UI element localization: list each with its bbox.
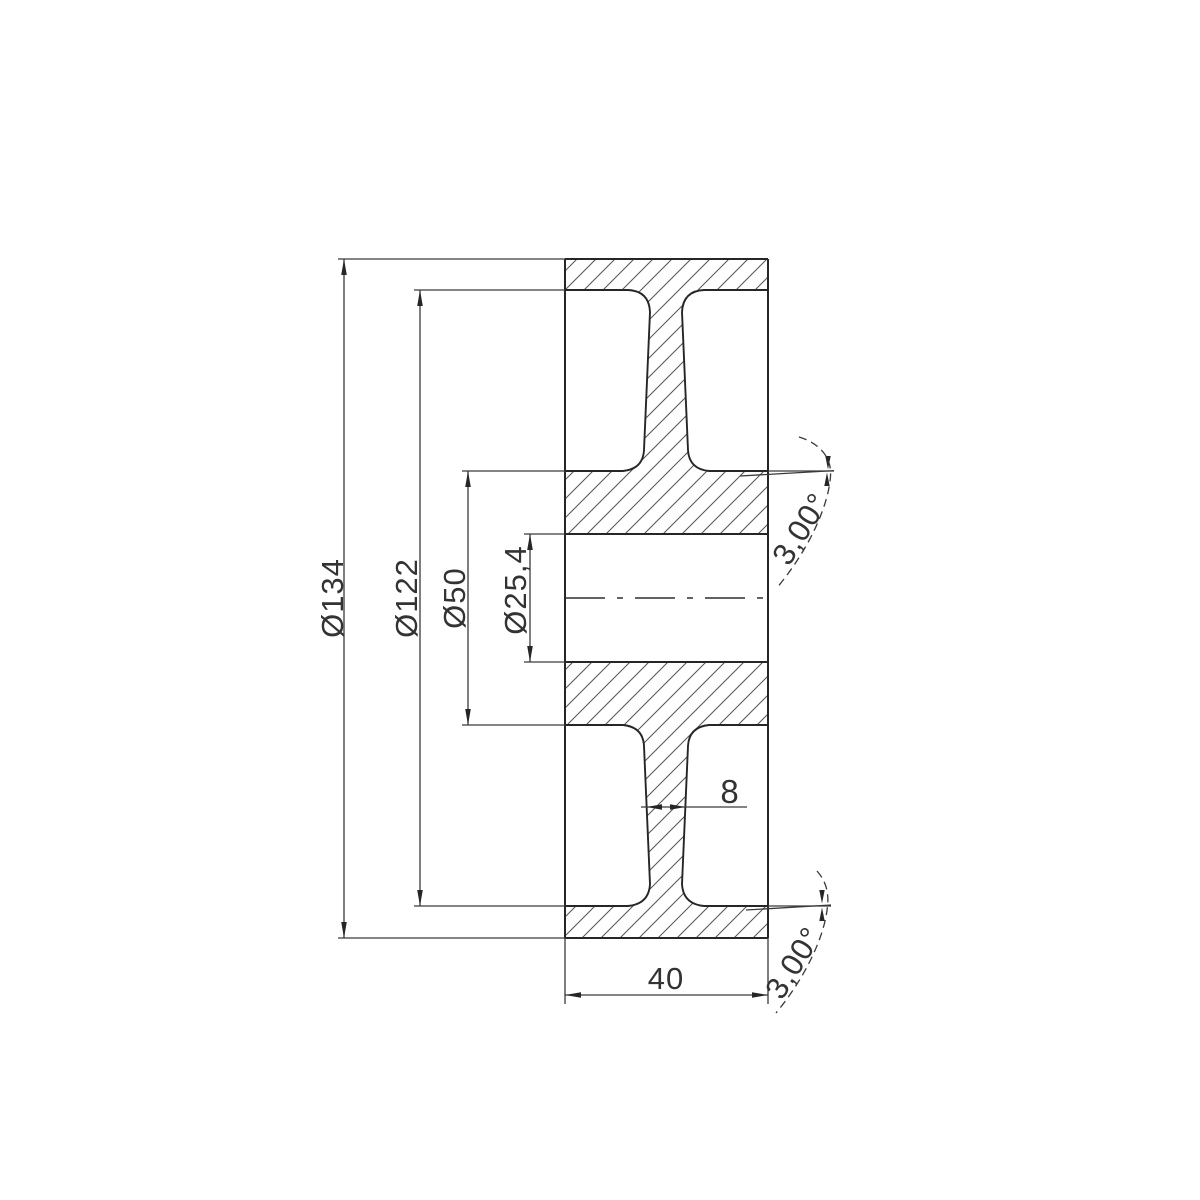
dim-bore-diameter: Ø25,4 (498, 534, 565, 662)
lower-right-pocket (682, 725, 768, 906)
arrowhead-up (819, 908, 824, 922)
arrowhead-down (417, 890, 423, 906)
arrowhead-up (341, 259, 347, 275)
arrowhead-down (465, 709, 471, 725)
arrowhead-up (417, 290, 423, 306)
dim-outer-diameter-label: Ø134 (315, 558, 350, 638)
upper-left-pocket (565, 290, 650, 471)
wheel-cross-section-drawing: Ø134 Ø122 Ø50 Ø25,4 8 (0, 0, 1200, 1200)
arrowhead-left (565, 992, 581, 998)
arrowhead-down (527, 646, 533, 662)
dim-rim-inner-diameter: Ø122 (389, 290, 565, 906)
dim-draft-angle-upper-label: 3,00° (765, 487, 836, 571)
dim-bore-diameter-label: Ø25,4 (498, 545, 533, 634)
dim-overall-width-label: 40 (648, 961, 684, 996)
arrowhead-down (341, 922, 347, 938)
lower-left-pocket (565, 725, 650, 906)
arrowhead-up (824, 473, 829, 487)
drawing-canvas: Ø134 Ø122 Ø50 Ø25,4 8 (0, 0, 1200, 1200)
dim-web-thickness-label: 8 (720, 773, 739, 810)
dim-rim-inner-diameter-label: Ø122 (389, 558, 424, 638)
dim-hub-diameter-label: Ø50 (437, 567, 472, 629)
upper-right-pocket (682, 290, 768, 471)
dim-overall-width: 40 (565, 938, 768, 1004)
arrowhead-down (819, 890, 824, 904)
arrowhead-right (752, 992, 768, 998)
arrowhead-up (465, 471, 471, 487)
